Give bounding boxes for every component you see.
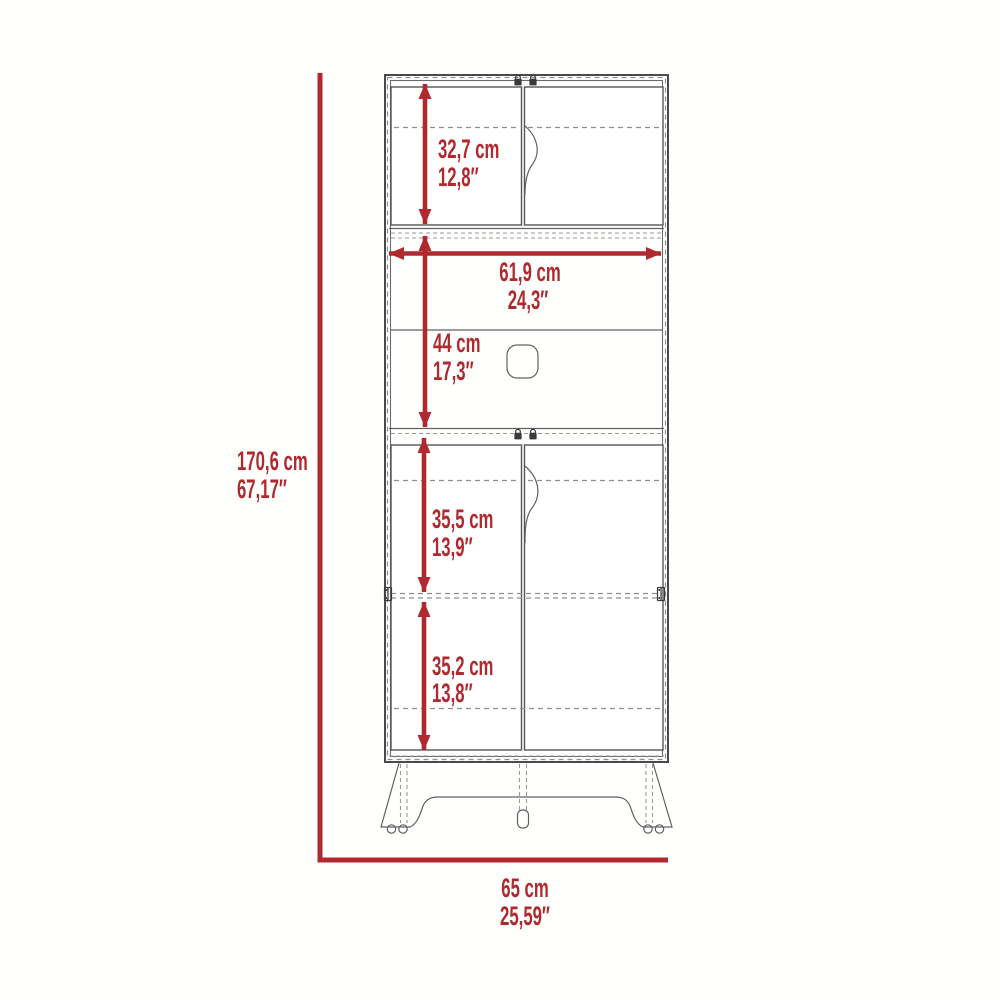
dimension-diagram: 32,7 cm 12,8″ 61,9 cm 24,3″ 44 cm 17,3″ … xyxy=(0,0,1000,1000)
svg-text:13,9″: 13,9″ xyxy=(432,532,473,562)
svg-text:35,2 cm: 35,2 cm xyxy=(432,651,493,681)
svg-text:44 cm: 44 cm xyxy=(433,328,480,358)
lower-hinge-icon xyxy=(529,429,536,439)
svg-text:24,3″: 24,3″ xyxy=(508,285,549,315)
upper-doors xyxy=(391,75,663,225)
label-open-section-height-metric: 44 cm xyxy=(433,328,480,358)
label-lower-bottom-height-imperial: 13,8″ xyxy=(432,678,473,708)
svg-text:32,7 cm: 32,7 cm xyxy=(438,134,499,164)
middle-rail xyxy=(389,229,664,239)
label-overall-height-imperial: 67,17″ xyxy=(237,474,287,504)
label-interior-width-imperial: 24,3″ xyxy=(508,285,549,315)
label-overall-height-metric: 170,6 cm xyxy=(237,446,308,476)
leg-glide xyxy=(399,825,407,833)
leg-glide xyxy=(655,825,663,833)
label-overall-width-metric: 65 cm xyxy=(501,873,548,903)
label-interior-width-metric: 61,9 cm xyxy=(499,257,560,287)
svg-text:65 cm: 65 cm xyxy=(501,873,548,903)
lower-hinge-icon xyxy=(514,429,521,439)
open-section xyxy=(391,330,663,378)
label-lower-bottom-height-metric: 35,2 cm xyxy=(432,651,493,681)
label-lower-upper-height-metric: 35,5 cm xyxy=(432,504,493,534)
leg-glide xyxy=(387,825,395,833)
center-foot xyxy=(518,810,529,828)
svg-text:61,9 cm: 61,9 cm xyxy=(499,257,560,287)
leg-glide xyxy=(644,825,652,833)
lower-doors xyxy=(385,445,665,750)
svg-text:17,3″: 17,3″ xyxy=(433,356,474,386)
lower-rail xyxy=(389,429,664,440)
svg-text:25,59″: 25,59″ xyxy=(500,901,550,931)
base-legs xyxy=(381,763,672,833)
svg-text:67,17″: 67,17″ xyxy=(237,474,287,504)
cable-hole xyxy=(507,345,538,378)
cabinet-drawing-svg: 32,7 cm 12,8″ 61,9 cm 24,3″ 44 cm 17,3″ … xyxy=(0,0,1000,1000)
label-overall-width-imperial: 25,59″ xyxy=(500,901,550,931)
label-upper-door-height-imperial: 12,8″ xyxy=(438,162,479,192)
svg-text:35,5 cm: 35,5 cm xyxy=(432,504,493,534)
label-open-section-height-imperial: 17,3″ xyxy=(433,356,474,386)
svg-text:13,8″: 13,8″ xyxy=(432,678,473,708)
svg-text:12,8″: 12,8″ xyxy=(438,162,479,192)
label-upper-door-height-metric: 32,7 cm xyxy=(438,134,499,164)
upper-right-door xyxy=(525,87,664,225)
label-lower-upper-height-imperial: 13,9″ xyxy=(432,532,473,562)
svg-text:170,6 cm: 170,6 cm xyxy=(237,446,308,476)
